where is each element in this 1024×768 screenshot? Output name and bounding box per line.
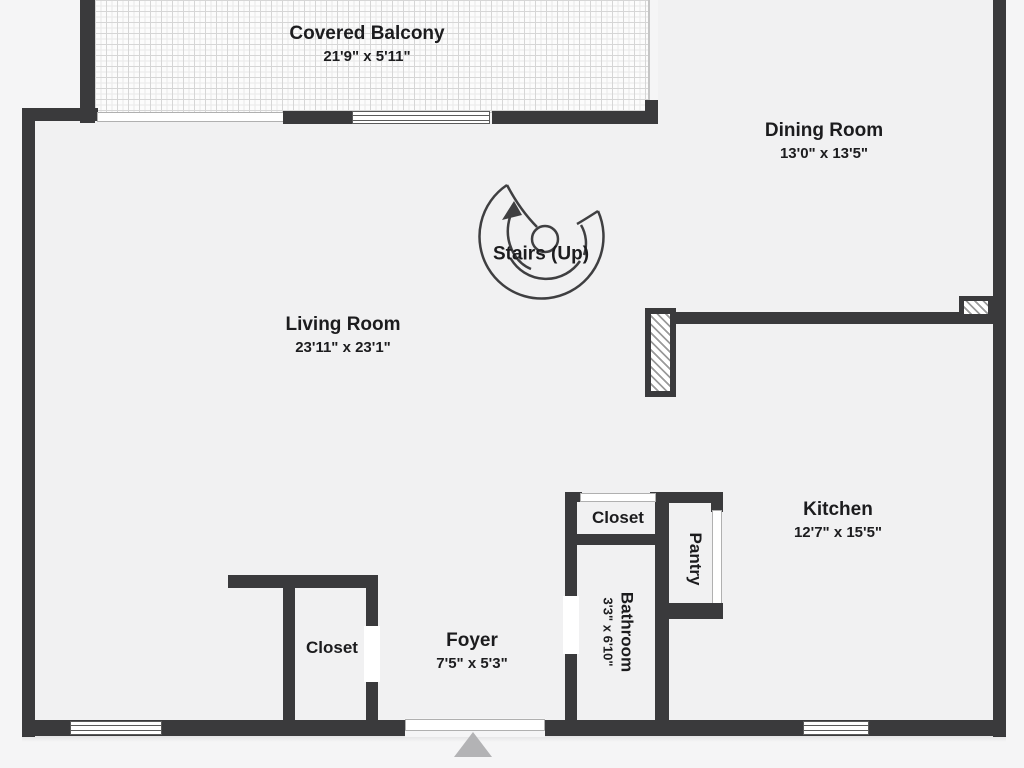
closet-door-opening	[580, 493, 656, 502]
floor-plan: Covered Balcony 21'9" x 5'11" Dining Roo…	[0, 0, 1024, 768]
kitchen-window	[803, 721, 869, 735]
closet-bathroom-divider	[565, 534, 669, 545]
half-wall-hatch-left	[645, 308, 676, 397]
foyer-closet-label: Closet	[306, 637, 358, 659]
foyer-closet-wall-left	[283, 586, 295, 722]
balcony-window	[352, 111, 490, 124]
dining-room-label: Dining Room 13'0" x 13'5"	[765, 119, 883, 163]
room-name: Foyer	[436, 629, 507, 654]
pantry-wall-bottom	[655, 603, 723, 619]
window-pane	[71, 725, 161, 731]
room-dims: 12'7" x 15'5"	[794, 523, 882, 543]
balcony-sliding-opening	[97, 112, 285, 122]
spiral-stairs-icon	[478, 170, 618, 310]
balcony-corner-post	[645, 100, 658, 124]
pantry-door-opening	[712, 510, 722, 605]
room-name: Closet	[592, 507, 644, 529]
balcony-wall-bottom-a	[283, 111, 353, 124]
exterior-wall-left	[22, 108, 35, 737]
pantry-right-stub	[711, 492, 723, 512]
living-room-label: Living Room 23'11" x 23'1"	[285, 313, 400, 357]
room-name: Closet	[306, 637, 358, 659]
living-room-window	[70, 721, 162, 735]
entrance-threshold	[405, 719, 545, 731]
window-pane	[804, 725, 868, 731]
pantry-label: Pantry	[684, 533, 706, 586]
foyer-closet-door-gap	[364, 626, 380, 682]
room-name: Living Room	[285, 313, 400, 338]
window-pane	[353, 115, 489, 121]
bathroom-label: Bathroom 3'3" x 6'10"	[599, 592, 638, 672]
room-dims: 21'9" x 5'11"	[289, 47, 444, 67]
room-dims: 13'0" x 13'5"	[765, 144, 883, 164]
foyer-closet-wall-top	[228, 575, 378, 588]
foyer-closet-wall-right-upper	[366, 586, 378, 626]
kitchen-dining-wall	[658, 312, 993, 324]
room-name: Stairs (Up)	[493, 243, 589, 268]
half-wall-hatch-right	[959, 296, 993, 319]
room-dims: 23'11" x 23'1"	[285, 338, 400, 358]
room-name: Kitchen	[794, 498, 882, 523]
room-dims: 7'5" x 5'3"	[436, 654, 507, 674]
foyer-label: Foyer 7'5" x 5'3"	[436, 629, 507, 673]
balcony-wall-left	[80, 0, 95, 123]
balcony-label: Covered Balcony 21'9" x 5'11"	[289, 22, 444, 66]
entrance-arrow-icon	[454, 732, 492, 757]
kitchen-label: Kitchen 12'7" x 15'5"	[794, 498, 882, 542]
foyer-closet-wall-right-lower	[366, 682, 378, 722]
room-dims: 3'3" x 6'10"	[599, 592, 616, 672]
exterior-wall-right	[993, 0, 1006, 737]
balcony-wall-bottom-b	[492, 111, 648, 124]
room-name: Bathroom	[615, 592, 637, 672]
hall-closet-label: Closet	[592, 507, 644, 529]
bathroom-door-gap	[563, 596, 579, 654]
dining-room-floor	[658, 0, 993, 121]
stairs-label: Stairs (Up)	[493, 243, 589, 268]
room-name: Pantry	[684, 533, 706, 586]
bathroom-wall-left-lower	[565, 654, 577, 722]
room-name: Dining Room	[765, 119, 883, 144]
room-name: Covered Balcony	[289, 22, 444, 47]
